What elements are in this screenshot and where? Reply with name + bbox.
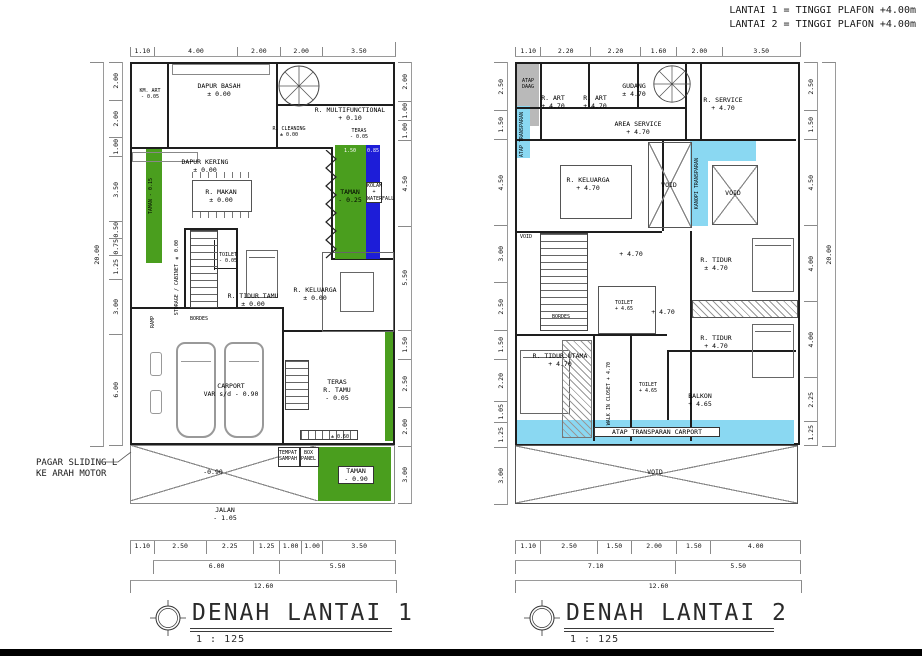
dimension-value: 1.25	[494, 422, 507, 446]
dimension-value: 2.00	[398, 62, 411, 101]
label-box-panel: BOX PANEL	[301, 450, 316, 463]
dimension-value: 0.75	[109, 238, 122, 255]
room-label-balkon: BALKON+ 4.65	[678, 392, 722, 408]
title-underline	[564, 628, 774, 629]
room-label-carport: CARPORTVAR s/d - 0.90	[196, 382, 266, 398]
plan1-right-dimensions: 2.001.001.004.505.501.502.502.003.00	[398, 62, 412, 504]
dimension-value: 4.50	[494, 139, 507, 225]
title-marker-icon	[150, 600, 186, 636]
dimension-value: 1.50	[804, 110, 817, 139]
title-underline	[190, 631, 392, 632]
dimension-value: 6.00	[153, 561, 279, 574]
dimension-value: 3.00	[494, 447, 507, 504]
room-label-makan: R. MAKAN± 0.00	[196, 188, 246, 204]
label-tempat-sampah: TEMPAT SAMPAH	[279, 450, 297, 463]
wardrobe-band	[692, 300, 798, 318]
dimension-value: 1.00	[301, 541, 322, 554]
room-label-toilet2: TOILET+ 4.65	[634, 382, 662, 395]
floorplan-sheet: LANTAI 1 = TINGGI PLAFON +4.00m LANTAI 2…	[0, 0, 922, 656]
room-label-dapur-basah: DAPUR BASAH± 0.00	[188, 82, 250, 98]
title-marker-icon	[524, 600, 560, 636]
room-label-kolam: KOLAM + WATERFALL	[366, 182, 382, 203]
dimension-value: 2.00	[109, 100, 122, 138]
plan1-bottom-subtotal-dimensions: 6.005.50	[153, 560, 396, 574]
void-label-right: VOID	[720, 189, 746, 197]
wall	[282, 307, 284, 445]
void-label-mid: VOID	[656, 181, 682, 189]
room-label-wic: WALK IN CLOSET + 4.70	[606, 362, 612, 425]
room-label-bordes2: BORDES	[546, 314, 576, 320]
spiral-stair-icon	[652, 64, 692, 104]
room-label-cleaning: R. CLEANING± 0.00	[272, 126, 306, 139]
dimension-value: 2.50	[154, 541, 206, 554]
dimension-value: 2.00	[398, 407, 411, 446]
dimension-value: 1.10	[515, 541, 540, 554]
dimension-value: 1.10	[130, 541, 154, 554]
dimension-value: 6.00	[109, 334, 122, 445]
room-label-tidur-utama: R. TIDUR UTAMA+ 4.70	[528, 352, 592, 368]
wall	[630, 335, 632, 441]
dimension-value: 2.00	[280, 47, 322, 56]
dimension-value: 4.00	[154, 47, 238, 56]
dimension-value: 2.50	[398, 359, 411, 407]
room-label-teras-tamu: TERASR. TAMU- 0.05	[312, 378, 362, 402]
dimension-value: 3.00	[494, 225, 507, 282]
wall	[593, 335, 595, 441]
void-label-left: VOID	[516, 234, 536, 240]
dimension-value: 1.50	[676, 541, 710, 554]
dimension-value: 2.00	[237, 47, 279, 56]
dimension-value: 3.00	[398, 446, 411, 503]
dimension-value: 7.10	[515, 561, 675, 574]
dimension-value: 5.50	[279, 561, 395, 574]
wall	[517, 334, 667, 336]
note-lantai-1: LANTAI 1 = TINGGI PLAFON +4.00m	[729, 4, 916, 18]
dimension-value: 2.00	[109, 62, 122, 100]
motorbike-shape	[150, 352, 162, 376]
dimension-value: 4.50	[804, 139, 817, 225]
room-label-kanopi: KANOPI TRANSPARAN	[694, 158, 700, 209]
room-label-area-service: AREA SERVICE+ 4.70	[610, 120, 666, 136]
room-label-art2: R. ART+ 4.70	[580, 94, 610, 110]
dimension-value: 1.60	[640, 47, 676, 56]
dimension-value: 1.00	[398, 120, 411, 140]
plan2-bottom-subtotal-dimensions: 7.105.50	[515, 560, 801, 574]
garden-dim-label: 1.50	[338, 148, 362, 154]
room-label-atap-kiri: ATAP TRANSPARAN	[519, 112, 525, 157]
dimension-value: 5.50	[398, 226, 411, 330]
title-underline	[564, 631, 774, 632]
dimension-value: 3.50	[109, 156, 122, 221]
spiral-stair-icon	[277, 64, 321, 108]
dimension-value: 3.00	[109, 279, 122, 335]
plan2-scale: 1 : 125	[570, 634, 619, 645]
dimension-value: 3.50	[322, 47, 395, 56]
dimension-value: 5.50	[675, 561, 800, 574]
dimension-value: 1.25	[804, 421, 817, 446]
dimension-value: 2.00	[676, 47, 721, 56]
ceiling-height-notes: LANTAI 1 = TINGGI PLAFON +4.00m LANTAI 2…	[729, 4, 916, 32]
dimension-value: 2.50	[804, 62, 817, 110]
main-stair	[190, 230, 218, 308]
room-label-dapur-kering: DAPUR KERING± 0.00	[176, 158, 234, 174]
wall	[667, 350, 669, 420]
dimension-value: 4.50	[398, 140, 411, 226]
plan2-title: DENAH LANTAI 2	[566, 600, 788, 626]
terrace-planter	[385, 332, 393, 441]
step-level-label: ± 0.60	[322, 434, 358, 440]
note-lantai-2: LANTAI 2 = TINGGI PLAFON +4.00m	[729, 18, 916, 32]
room-label-taman-kiri: TAMAN - 0.15	[148, 178, 154, 214]
room-label-taman-depan: TAMAN- 0.90	[338, 466, 374, 484]
dimension-value: 1.00	[109, 137, 122, 156]
hall-level-b: + 4.70	[648, 308, 678, 316]
dimension-value: 1.50	[494, 110, 507, 139]
dimension-value: 2.50	[494, 62, 507, 110]
room-label-tidur2: R. TIDUR+ 4.70	[694, 334, 738, 350]
room-label-atap-daag: ATAP DAAG	[517, 78, 539, 91]
plan2-bottom-total-dimension: 12.60	[515, 580, 802, 593]
dimension-value: 1.50	[597, 541, 631, 554]
dimension-value: 1.50	[494, 330, 507, 359]
plan2-bottom-dimensions: 1.102.501.502.001.504.00	[515, 540, 801, 554]
room-label-service: R. SERVICE+ 4.70	[700, 96, 746, 112]
plan2-right-dimensions: 2.501.504.504.004.002.251.25	[804, 62, 818, 446]
room-label-keluarga2: R. KELUARGA+ 4.70	[560, 176, 616, 192]
room-label-km-art: KM. ART- 0.05	[136, 88, 164, 101]
coffee-table	[340, 272, 374, 312]
plan1-title: DENAH LANTAI 1	[192, 600, 414, 626]
plan1-left-total-dimension: 20.00	[90, 62, 104, 447]
dimension-value: 4.00	[710, 541, 800, 554]
wall	[184, 228, 186, 308]
dining-chairs	[192, 212, 250, 218]
dimension-value: 2.25	[804, 377, 817, 420]
room-label-tidur1: R. TIDUR± 4.70	[694, 256, 738, 272]
terrace-steps	[285, 360, 309, 410]
plan1-top-dimensions: 1.104.002.002.003.50	[130, 42, 396, 57]
folding-door-zigzag	[324, 150, 338, 260]
plan2-left-dimensions: 2.501.504.503.002.501.502.201.051.253.00	[494, 62, 508, 505]
dimension-value: 1.25	[253, 541, 280, 554]
dimension-value: 1.10	[130, 47, 154, 56]
guest-bed	[246, 250, 278, 298]
leader-line	[100, 450, 132, 466]
dimension-value: 1.05	[494, 401, 507, 422]
driveway-level-label: -0.90	[188, 468, 238, 476]
dimension-value: 2.20	[540, 47, 590, 56]
wall	[167, 64, 169, 148]
room-label-storage: STORAGE / CABINET ± 0.00	[174, 240, 180, 315]
dimension-value: 1.50	[398, 330, 411, 359]
plan1-scale: 1 : 125	[196, 634, 245, 645]
dimension-value: 1.25	[109, 255, 122, 279]
title-underline	[190, 628, 392, 629]
dimension-value: 1.10	[515, 47, 540, 56]
kitchen-counter	[172, 64, 270, 75]
room-label-keluarga: R. KELUARGA± 0.00	[286, 286, 344, 302]
plan2-top-dimensions: 1.102.202.201.602.003.50	[515, 42, 801, 57]
pond-dim-label: 0.85	[366, 148, 380, 154]
plan1-bottom-dimensions: 1.102.502.251.251.001.003.50	[130, 540, 396, 554]
room-label-ramp: RAMP	[150, 316, 156, 328]
room-label-taman-tengah: TAMAN- 0.25	[336, 188, 364, 204]
wall	[517, 139, 796, 141]
dimension-value: 3.50	[722, 47, 801, 56]
plan2-right-total-dimension: 20.00	[822, 62, 836, 447]
wall	[517, 231, 662, 233]
dimension-value: 2.25	[206, 541, 253, 554]
bed-shape	[752, 324, 794, 378]
dimension-value: 2.50	[540, 541, 596, 554]
bed-shape	[752, 238, 794, 292]
room-label-gudang: GUDANG± 4.70	[616, 82, 652, 98]
room-label-tidur-tamu: R. TIDUR TAMU± 0.00	[224, 292, 282, 308]
wall	[690, 231, 692, 441]
dimension-value: 2.20	[590, 47, 640, 56]
dimension-value: 4.00	[804, 225, 817, 301]
dimension-value: 1.00	[398, 101, 411, 121]
dimension-value: 1.00	[279, 541, 300, 554]
room-label-teras-samping: TERAS- 0.05	[344, 128, 374, 141]
void-label-bottom: VOID	[642, 468, 668, 476]
dimension-value: 2.20	[494, 359, 507, 401]
plan1-left-dimensions: 2.002.001.003.500.500.751.253.006.00	[109, 62, 123, 446]
hall-level-a: + 4.70	[616, 250, 646, 258]
room-label-art1: R. ART+ 4.70	[538, 94, 568, 110]
room-label-toilet1: TOILET+ 4.65	[610, 300, 638, 313]
label-atap-transparan-carport: ATAP TRANSPARAN CARPORT	[594, 427, 720, 437]
dimension-value: 4.00	[804, 301, 817, 377]
room-label-bordes: BORDES	[184, 316, 214, 322]
dimension-value: 2.00	[631, 541, 676, 554]
room-label-jalan: JALAN- 1.05	[200, 506, 250, 522]
wall	[132, 147, 332, 149]
sheet-bottom-bar	[0, 649, 922, 656]
plan1-bottom-total-dimension: 12.60	[130, 580, 397, 593]
dimension-value: 3.50	[322, 541, 395, 554]
dimension-value: 0.50	[109, 221, 122, 238]
dimension-value: 2.50	[494, 282, 507, 330]
room-label-toilet: TOILET- 0.05	[216, 252, 240, 265]
room-label-multifunctional: R. MULTIFUNCTIONAL+ 0.10	[312, 106, 388, 122]
motorbike-shape	[150, 390, 162, 414]
